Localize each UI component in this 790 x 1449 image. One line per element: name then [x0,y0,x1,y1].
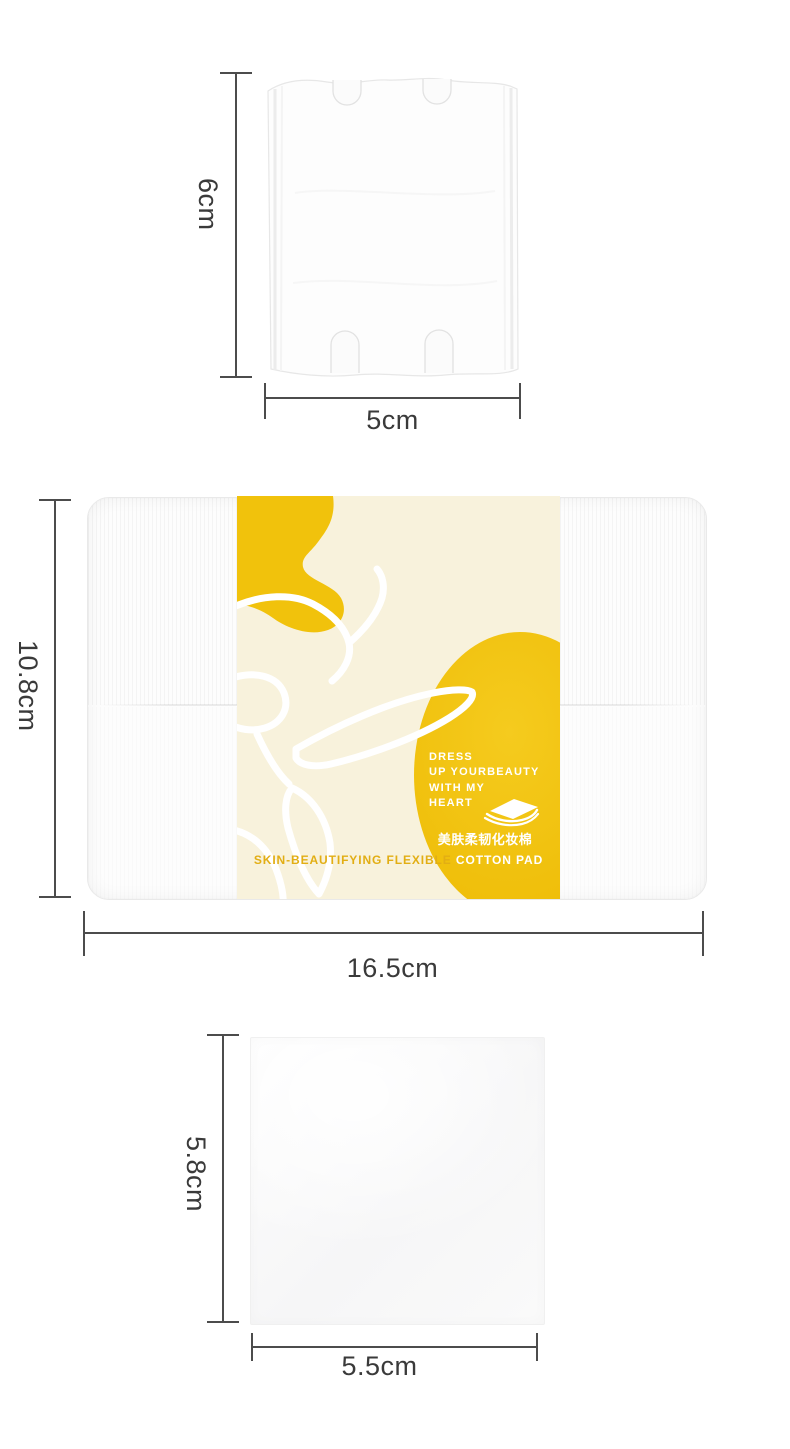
package-width-line [83,932,703,934]
dim-cap [207,1321,239,1323]
product-dimension-sheet: 6cm 5cm 10.8cm [0,0,790,1449]
slogan-line: UP YOURBEAUTY [429,765,540,780]
bottom-pad-height-line [222,1035,224,1322]
product-name-en-left: SKIN-BEAUTIFYING FLEXIBLE [254,853,452,867]
product-name-en-right: COTTON PAD [456,853,543,867]
cotton-pad-stack-icon [480,795,540,829]
package-height-label: 10.8cm [12,640,44,732]
package-label-band: DRESS UP YOURBEAUTY WITH MY HEART 美肤柔韧化妆… [237,496,560,899]
cotton-pad-front-photo [265,73,522,385]
top-pad-height-line [235,73,237,377]
cotton-pad-back-photo [250,1037,545,1325]
slogan-line: WITH MY [429,781,540,796]
product-name-en: SKIN-BEAUTIFYING FLEXIBLE COTTON PAD [237,853,560,867]
package-width-label: 16.5cm [250,952,535,984]
bottom-pad-width-line [252,1346,537,1348]
bottom-pad-height-label: 5.8cm [180,1136,212,1212]
slogan-line: DRESS [429,750,540,765]
product-name-cn: 美肤柔韧化妆棉 [415,829,555,848]
dim-cap [220,376,252,378]
top-pad-height-label: 6cm [192,178,224,231]
dim-cap [83,911,85,956]
package-height-line [54,500,56,897]
bottom-pad-width-label: 5.5cm [237,1350,522,1382]
dim-cap [536,1333,538,1361]
dim-cap [39,896,71,898]
top-pad-width-line [265,397,520,399]
top-pad-width-label: 5cm [250,404,535,436]
dim-cap [702,911,704,956]
